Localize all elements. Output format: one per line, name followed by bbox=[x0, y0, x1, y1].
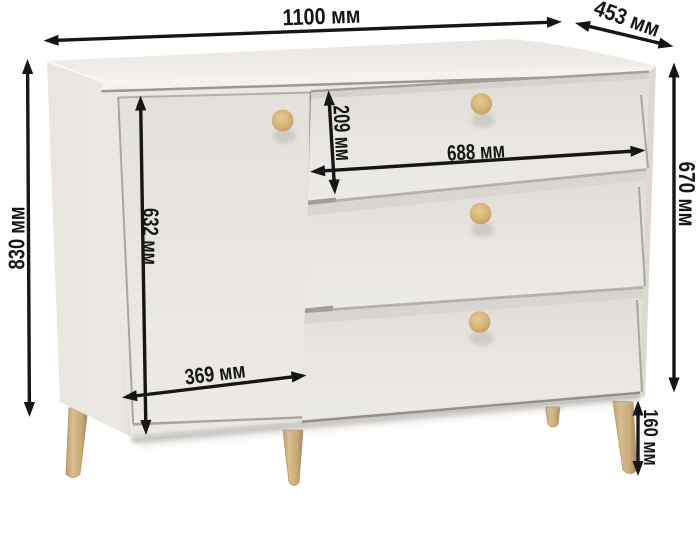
svg-text:160 мм: 160 мм bbox=[639, 409, 662, 466]
svg-text:830 мм: 830 мм bbox=[4, 207, 30, 270]
svg-text:670 мм: 670 мм bbox=[674, 162, 700, 227]
svg-text:632 мм: 632 мм bbox=[138, 208, 164, 265]
svg-text:1100 мм: 1100 мм bbox=[282, 2, 361, 31]
svg-text:209 мм: 209 мм bbox=[328, 105, 356, 162]
svg-text:688 мм: 688 мм bbox=[446, 137, 505, 165]
